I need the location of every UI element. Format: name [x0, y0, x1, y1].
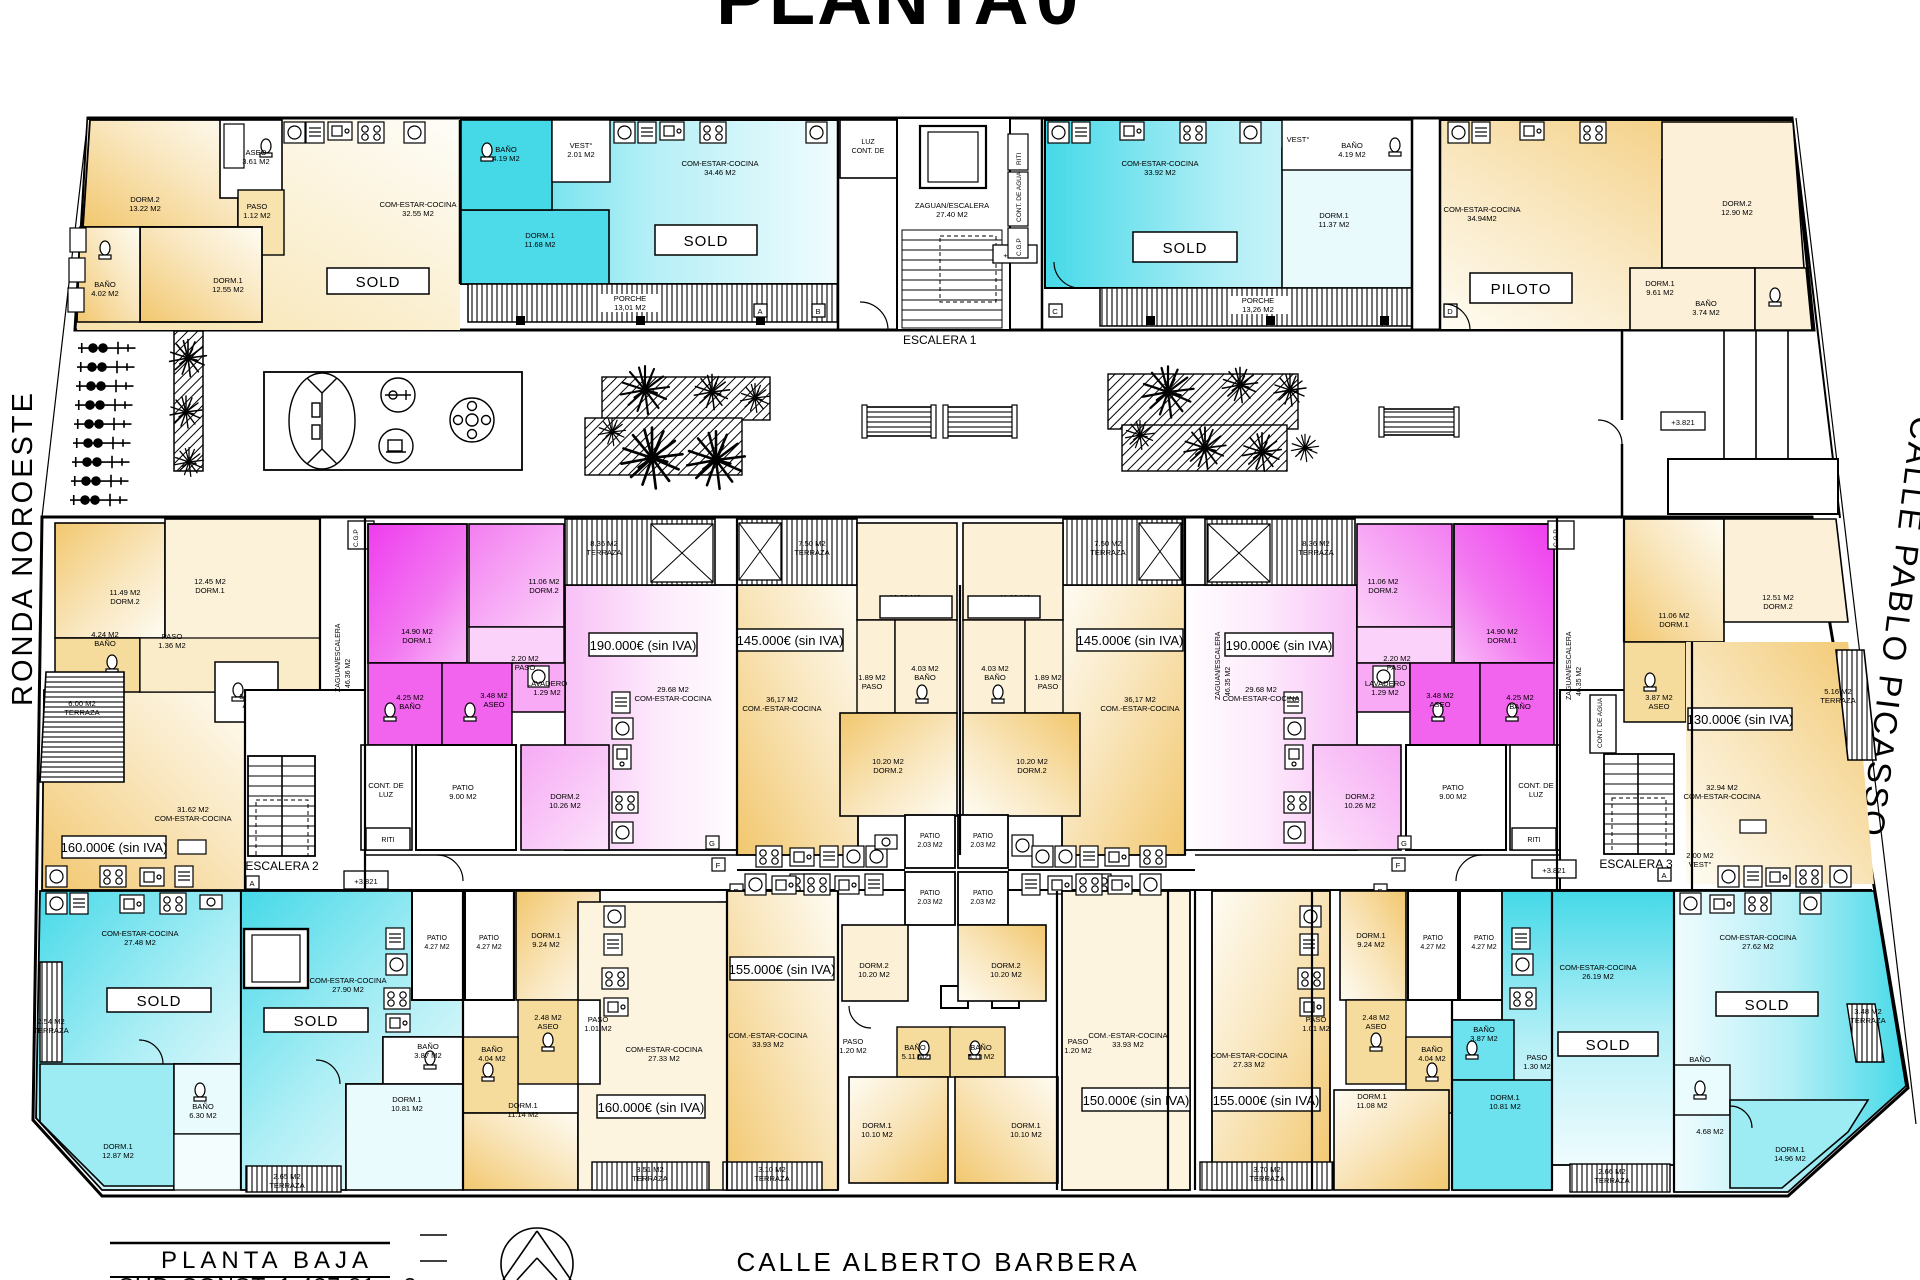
svg-text:12.51 M2: 12.51 M2 — [1762, 593, 1794, 602]
svg-text:BAÑO: BAÑO — [417, 1042, 439, 1051]
svg-text:11.68 M2: 11.68 M2 — [524, 240, 555, 249]
svg-text:4.25 M2: 4.25 M2 — [396, 693, 423, 702]
svg-text:BAÑO: BAÑO — [495, 145, 517, 154]
svg-text:DORM.2: DORM.2 — [1368, 586, 1398, 595]
svg-text:COM-ESTAR-COCINA: COM-ESTAR-COCINA — [1719, 933, 1797, 942]
svg-text:BAÑO: BAÑO — [1473, 1025, 1495, 1034]
svg-text:COM-ESTAR-COCINA: COM-ESTAR-COCINA — [681, 159, 759, 168]
svg-text:BAÑO: BAÑO — [1695, 299, 1717, 308]
svg-text:TERRAZA: TERRAZA — [33, 1026, 69, 1035]
svg-text:8.36 M2: 8.36 M2 — [1302, 539, 1329, 548]
svg-text:RITI: RITI — [1016, 153, 1023, 165]
svg-text:9.00 M2: 9.00 M2 — [1439, 792, 1466, 801]
svg-text:2.65 M2: 2.65 M2 — [273, 1172, 300, 1181]
svg-text:150.000€ (sin IVA): 150.000€ (sin IVA) — [1083, 1093, 1190, 1108]
svg-text:DORM.1: DORM.1 — [1319, 211, 1349, 220]
svg-text:46.35 M2: 46.35 M2 — [1225, 667, 1232, 696]
svg-text:ASEO: ASEO — [245, 148, 266, 157]
svg-text:10.10 M2: 10.10 M2 — [861, 1130, 893, 1139]
svg-text:SOLD: SOLD — [684, 233, 729, 250]
svg-text:0: 0 — [1036, 0, 1078, 41]
svg-text:BAÑO: BAÑO — [984, 673, 1006, 682]
svg-text:2.20 M2: 2.20 M2 — [511, 654, 538, 663]
svg-text:BAÑO: BAÑO — [914, 673, 936, 682]
svg-text:3.70 M2: 3.70 M2 — [1253, 1165, 1280, 1174]
svg-text:7.50 M2: 7.50 M2 — [1094, 539, 1121, 548]
svg-text:145.000€ (sin IVA): 145.000€ (sin IVA) — [737, 633, 844, 648]
svg-text:2.03 M2: 2.03 M2 — [917, 842, 942, 849]
svg-text:DORM.2: DORM.2 — [529, 586, 559, 595]
svg-text:2.03 M2: 2.03 M2 — [970, 842, 995, 849]
svg-text:COM.-ESTAR-COCINA: COM.-ESTAR-COCINA — [1088, 1031, 1168, 1040]
svg-text:4.03 M2: 4.03 M2 — [981, 664, 1008, 673]
svg-text:TERRAZA: TERRAZA — [1594, 1176, 1630, 1185]
svg-text:5.11 M2: 5.11 M2 — [902, 1052, 929, 1061]
svg-text:12.55 M2: 12.55 M2 — [212, 285, 244, 294]
svg-text:DORM.2: DORM.2 — [859, 961, 889, 970]
svg-text:14.90 M2: 14.90 M2 — [401, 627, 433, 636]
svg-text:+3.821: +3.821 — [1671, 418, 1694, 427]
svg-text:TERRAZA: TERRAZA — [1249, 1174, 1285, 1183]
svg-text:3.74 M2: 3.74 M2 — [1692, 308, 1719, 317]
svg-text:COM-ESTAR-COCINA: COM-ESTAR-COCINA — [1559, 963, 1637, 972]
svg-text:CALLE ALBERTO BARBERA: CALLE ALBERTO BARBERA — [736, 1247, 1139, 1277]
svg-text:C.G.P: C.G.P — [1016, 238, 1023, 256]
svg-text:3.48 M2: 3.48 M2 — [480, 691, 507, 700]
svg-text:DORM.1: DORM.1 — [392, 1095, 422, 1104]
svg-text:10.20 M2: 10.20 M2 — [872, 757, 904, 766]
svg-text:1.20 M2: 1.20 M2 — [1064, 1046, 1091, 1055]
svg-text:ASEO: ASEO — [483, 700, 504, 709]
svg-text:COM-ESTAR-COCINA: COM-ESTAR-COCINA — [101, 929, 179, 938]
svg-text:DORM.1: DORM.1 — [1356, 931, 1386, 940]
svg-text:32.94 M2: 32.94 M2 — [1706, 783, 1738, 792]
svg-text:DORM.1: DORM.1 — [1659, 620, 1689, 629]
svg-text:34.94M2: 34.94M2 — [1467, 214, 1497, 223]
svg-text:DORM.2: DORM.2 — [873, 766, 903, 775]
svg-text:PATIO: PATIO — [1474, 935, 1495, 942]
svg-text:PASO: PASO — [247, 202, 268, 211]
svg-text:COM-ESTAR-COCINA: COM-ESTAR-COCINA — [1683, 792, 1761, 801]
svg-text:12.45 M2: 12.45 M2 — [194, 577, 226, 586]
svg-text:2.01 M2: 2.01 M2 — [567, 150, 594, 159]
svg-text:12.87 M2: 12.87 M2 — [102, 1151, 134, 1160]
svg-text:36,17 M2: 36,17 M2 — [1124, 695, 1156, 704]
svg-text:DORM.1: DORM.1 — [103, 1142, 133, 1151]
svg-text:SOLD: SOLD — [1163, 240, 1208, 257]
svg-text:11.06 M2: 11.06 M2 — [1367, 577, 1398, 586]
svg-text:TERRAZA: TERRAZA — [1298, 548, 1334, 557]
svg-text:10.26 M2: 10.26 M2 — [1344, 801, 1376, 810]
svg-text:PATIO: PATIO — [479, 935, 500, 942]
svg-text:3.48 M2: 3.48 M2 — [1854, 1007, 1881, 1016]
svg-text:145.000€ (sin IVA): 145.000€ (sin IVA) — [1077, 633, 1184, 648]
svg-text:C: C — [1052, 307, 1058, 316]
svg-text:14.90 M2: 14.90 M2 — [1486, 627, 1518, 636]
svg-text:PASO: PASO — [1038, 682, 1059, 691]
svg-text:10.81 M2: 10.81 M2 — [391, 1104, 423, 1113]
svg-text:RITI: RITI — [381, 837, 394, 844]
svg-text:4.27 M2: 4.27 M2 — [1471, 944, 1496, 951]
svg-text:LUZ: LUZ — [1529, 790, 1544, 799]
svg-text:SOLD: SOLD — [1745, 997, 1790, 1014]
svg-text:26.19 M2: 26.19 M2 — [1582, 972, 1614, 981]
svg-text:11.06 M2: 11.06 M2 — [528, 577, 559, 586]
svg-text:COM-ESTAR-COCINA: COM-ESTAR-COCINA — [154, 814, 232, 823]
svg-text:13,01 M2: 13,01 M2 — [614, 303, 646, 312]
svg-text:CONT. DE: CONT. DE — [368, 781, 403, 790]
svg-text:33.93 M2: 33.93 M2 — [752, 1040, 784, 1049]
svg-text:160.000€ (sin IVA): 160.000€ (sin IVA) — [598, 1100, 705, 1115]
svg-text:190.000€ (sin IVA): 190.000€ (sin IVA) — [590, 638, 697, 653]
svg-text:PATIO: PATIO — [1423, 935, 1444, 942]
svg-text:29.68 M2: 29.68 M2 — [1245, 685, 1277, 694]
svg-text:PASO: PASO — [843, 1037, 864, 1046]
svg-text:DORM.1: DORM.1 — [525, 231, 555, 240]
svg-text:F: F — [1396, 861, 1401, 870]
svg-text:DORM.2: DORM.2 — [550, 792, 580, 801]
svg-text:BAÑO: BAÑO — [94, 639, 116, 648]
svg-text:COM-ESTAR-COCINA: COM-ESTAR-COCINA — [379, 200, 457, 209]
svg-text:2.20 M2: 2.20 M2 — [1383, 654, 1410, 663]
svg-text:155.000€ (sin IVA): 155.000€ (sin IVA) — [729, 962, 836, 977]
svg-text:ZAGUAN/ESCALERA: ZAGUAN/ESCALERA — [915, 201, 990, 210]
svg-text:PASO: PASO — [1306, 1015, 1327, 1024]
svg-text:COM-ESTAR-COCINA: COM-ESTAR-COCINA — [1210, 1051, 1288, 1060]
svg-text:DORM.1: DORM.1 — [1357, 1092, 1387, 1101]
svg-text:PATIO: PATIO — [973, 890, 994, 897]
svg-text:ZAGUAN/ESCALERA: ZAGUAN/ESCALERA — [1215, 631, 1222, 700]
svg-text:ASEO: ASEO — [1365, 1022, 1386, 1031]
svg-text:10.81 M2: 10.81 M2 — [1489, 1102, 1521, 1111]
svg-text:11.37 M2: 11.37 M2 — [1318, 220, 1349, 229]
svg-text:COM-ESTAR-COCINA: COM-ESTAR-COCINA — [634, 694, 712, 703]
svg-text:COM-ESTAR-COCINA: COM-ESTAR-COCINA — [625, 1045, 703, 1054]
svg-text:9.24 M2: 9.24 M2 — [532, 940, 559, 949]
svg-text:29.68 M2: 29.68 M2 — [657, 685, 689, 694]
svg-text:11.14 M2: 11.14 M2 — [507, 1110, 538, 1119]
svg-text:4.24 M2: 4.24 M2 — [91, 630, 118, 639]
svg-text:PASO: PASO — [162, 632, 183, 641]
svg-text:2.03 M2: 2.03 M2 — [970, 899, 995, 906]
svg-text:33.92 M2: 33.92 M2 — [1144, 168, 1176, 177]
svg-text:ASEO: ASEO — [1429, 700, 1450, 709]
svg-text:DORM.1: DORM.1 — [1775, 1145, 1805, 1154]
svg-text:DORM.1: DORM.1 — [1487, 636, 1517, 645]
svg-text:TERRAZA: TERRAZA — [64, 708, 100, 717]
svg-text:DORM.2: DORM.2 — [130, 195, 160, 204]
svg-text:3.87 M2: 3.87 M2 — [1645, 693, 1672, 702]
svg-text:27.62 M2: 27.62 M2 — [1742, 942, 1774, 951]
svg-text:4.03 M2: 4.03 M2 — [911, 664, 938, 673]
svg-text:SUP. CONST: 1.437,81 m2: SUP. CONST: 1.437,81 m2 — [119, 1273, 418, 1280]
svg-text:BAÑO: BAÑO — [1689, 1055, 1711, 1064]
svg-text:DORM.1: DORM.1 — [195, 586, 225, 595]
svg-text:PASO: PASO — [1387, 663, 1408, 672]
svg-text:BAÑO: BAÑO — [904, 1043, 926, 1052]
svg-text:DORM.1: DORM.1 — [508, 1101, 538, 1110]
svg-text:4.04 M2: 4.04 M2 — [1418, 1054, 1445, 1063]
svg-text:PORCHE: PORCHE — [1242, 296, 1275, 305]
svg-text:10.20 M2: 10.20 M2 — [1016, 757, 1048, 766]
svg-text:COM.-ESTAR-COCINA: COM.-ESTAR-COCINA — [728, 1031, 808, 1040]
svg-text:SOLD: SOLD — [137, 993, 182, 1010]
svg-text:TERRAZA: TERRAZA — [1090, 548, 1126, 557]
svg-text:12.90 M2: 12.90 M2 — [1721, 208, 1753, 217]
svg-text:COM.-ESTAR-COCINA: COM.-ESTAR-COCINA — [742, 704, 822, 713]
svg-text:6.00 M2: 6.00 M2 — [68, 699, 95, 708]
svg-text:COM-ESTAR-COCINA: COM-ESTAR-COCINA — [1121, 159, 1199, 168]
svg-text:3.87 M2: 3.87 M2 — [414, 1051, 441, 1060]
svg-text:27.48 M2: 27.48 M2 — [124, 938, 156, 947]
svg-text:SOLD: SOLD — [1586, 1037, 1631, 1054]
svg-text:46.36 M2: 46.36 M2 — [345, 659, 352, 688]
svg-text:4.68 M2: 4.68 M2 — [1696, 1127, 1723, 1136]
svg-text:ASEO: ASEO — [537, 1022, 558, 1031]
svg-text:13.22 M2: 13.22 M2 — [129, 204, 161, 213]
svg-text:PATIO: PATIO — [920, 890, 941, 897]
svg-text:PATIO: PATIO — [427, 935, 448, 942]
svg-text:DORM.2: DORM.2 — [1722, 199, 1752, 208]
svg-text:TERRAZA: TERRAZA — [1820, 696, 1856, 705]
svg-text:TERRAZA: TERRAZA — [586, 548, 622, 557]
svg-text:155.000€ (sin IVA): 155.000€ (sin IVA) — [1213, 1093, 1320, 1108]
svg-text:4.19 M2: 4.19 M2 — [492, 154, 519, 163]
svg-text:DORM.2: DORM.2 — [1345, 792, 1375, 801]
svg-text:7.50 M2: 7.50 M2 — [798, 539, 825, 548]
svg-text:TERRAZA: TERRAZA — [754, 1174, 790, 1183]
svg-text:DORM.1: DORM.1 — [1011, 1121, 1041, 1130]
svg-text:RITI: RITI — [1527, 837, 1540, 844]
svg-text:DORM.1: DORM.1 — [1490, 1093, 1520, 1102]
svg-text:2.03 M2: 2.03 M2 — [917, 899, 942, 906]
svg-text:DORM.2: DORM.2 — [1017, 766, 1047, 775]
svg-text:ZAGUAN/ESCALERA: ZAGUAN/ESCALERA — [1566, 631, 1573, 700]
svg-text:ESCALERA 1: ESCALERA 1 — [903, 333, 977, 347]
svg-text:130.000€ (sin IVA): 130.000€ (sin IVA) — [1687, 712, 1794, 727]
svg-text:DORM.2: DORM.2 — [110, 597, 140, 606]
svg-text:LUZ: LUZ — [861, 139, 875, 146]
svg-text:COM-ESTAR-COCINA: COM-ESTAR-COCINA — [1443, 205, 1521, 214]
svg-text:DORM.2: DORM.2 — [1763, 602, 1793, 611]
svg-text:1.89 M2: 1.89 M2 — [858, 673, 885, 682]
svg-text:TERRAZA: TERRAZA — [632, 1174, 668, 1183]
svg-text:PORCHE: PORCHE — [614, 294, 647, 303]
svg-text:COM.-ESTAR-COCINA: COM.-ESTAR-COCINA — [1100, 704, 1180, 713]
svg-text:G: G — [709, 839, 715, 848]
svg-text:4.27 M2: 4.27 M2 — [1420, 944, 1445, 951]
svg-text:BAÑO: BAÑO — [94, 280, 116, 289]
svg-text:BAÑO: BAÑO — [970, 1043, 992, 1052]
svg-text:COM-ESTAR-COCINA: COM-ESTAR-COCINA — [1222, 694, 1300, 703]
svg-text:3.48 M2: 3.48 M2 — [1426, 691, 1453, 700]
svg-text:PILOTO: PILOTO — [1491, 281, 1552, 298]
svg-text:5.11 M2: 5.11 M2 — [968, 1052, 995, 1061]
svg-text:VEST°: VEST° — [570, 141, 593, 150]
svg-text:1.29 M2: 1.29 M2 — [533, 688, 560, 697]
svg-text:46.35 M2: 46.35 M2 — [1576, 667, 1583, 696]
svg-text:C.G.P: C.G.P — [353, 529, 360, 547]
svg-text:PATIO: PATIO — [1442, 783, 1464, 792]
svg-text:TERRAZA: TERRAZA — [269, 1181, 305, 1190]
svg-text:ESCALERA 2: ESCALERA 2 — [245, 859, 319, 873]
svg-text:ASEO: ASEO — [1648, 702, 1669, 711]
svg-text:PASO: PASO — [862, 682, 883, 691]
svg-text:9.24 M2: 9.24 M2 — [1357, 940, 1384, 949]
svg-text:11.08 M2: 11.08 M2 — [1356, 1101, 1387, 1110]
svg-text:D: D — [1447, 307, 1453, 316]
svg-text:2.48 M2: 2.48 M2 — [534, 1013, 561, 1022]
svg-text:3.87 M2: 3.87 M2 — [1470, 1034, 1497, 1043]
svg-text:4.04 M2: 4.04 M2 — [478, 1054, 505, 1063]
svg-text:LUZ: LUZ — [379, 790, 394, 799]
svg-text:3.51 M2: 3.51 M2 — [636, 1165, 663, 1174]
svg-text:4.27 M2: 4.27 M2 — [424, 944, 449, 951]
svg-text:G: G — [1401, 839, 1407, 848]
svg-text:10.20 M2: 10.20 M2 — [990, 970, 1022, 979]
svg-text:BAÑO: BAÑO — [1509, 702, 1531, 711]
svg-text:DORM.1: DORM.1 — [213, 276, 243, 285]
svg-text:32.55 M2: 32.55 M2 — [402, 209, 434, 218]
svg-text:PASO: PASO — [515, 663, 536, 672]
svg-text:DORM.1: DORM.1 — [531, 931, 561, 940]
svg-text:PASO: PASO — [588, 1015, 609, 1024]
svg-text:2.54 M2: 2.54 M2 — [37, 1017, 64, 1026]
svg-text:33.93 M2: 33.93 M2 — [1112, 1040, 1144, 1049]
svg-text:6.30 M2: 6.30 M2 — [189, 1111, 216, 1120]
svg-text:1.30 M2: 1.30 M2 — [1523, 1062, 1550, 1071]
svg-text:BAÑO: BAÑO — [192, 1102, 214, 1111]
svg-text:31.62 M2: 31.62 M2 — [177, 805, 209, 814]
svg-text:4.02 M2: 4.02 M2 — [91, 289, 118, 298]
svg-text:RONDA NOROESTE: RONDA NOROESTE — [7, 390, 39, 706]
svg-text:BAÑO: BAÑO — [1341, 141, 1363, 150]
svg-text:3.10 M2: 3.10 M2 — [758, 1165, 785, 1174]
svg-text:CONT. DE AGUA: CONT. DE AGUA — [1597, 697, 1604, 748]
svg-text:VEST°: VEST° — [1287, 135, 1310, 144]
svg-text:4.25 M2: 4.25 M2 — [1506, 693, 1533, 702]
svg-text:BAÑO: BAÑO — [1421, 1045, 1443, 1054]
svg-text:BAÑO: BAÑO — [399, 702, 421, 711]
svg-text:1.29 M2: 1.29 M2 — [1371, 688, 1398, 697]
svg-text:10.10 M2: 10.10 M2 — [1010, 1130, 1042, 1139]
svg-text:PASO: PASO — [1527, 1053, 1548, 1062]
svg-text:B: B — [815, 307, 820, 316]
svg-text:27.33 M2: 27.33 M2 — [648, 1054, 680, 1063]
svg-text:10.20 M2: 10.20 M2 — [858, 970, 890, 979]
svg-text:PASO: PASO — [1068, 1037, 1089, 1046]
svg-text:DORM.1: DORM.1 — [402, 636, 432, 645]
svg-text:2.48 M2: 2.48 M2 — [1362, 1013, 1389, 1022]
svg-text:4.27 M2: 4.27 M2 — [476, 944, 501, 951]
svg-text:LAVADERO: LAVADERO — [527, 679, 567, 688]
svg-text:2.00 M2: 2.00 M2 — [1686, 851, 1713, 860]
svg-text:160.000€ (sin IVA): 160.000€ (sin IVA) — [61, 840, 168, 855]
svg-text:CONT. DE AGUA: CONT. DE AGUA — [1016, 171, 1023, 222]
svg-text:13,26 M2: 13,26 M2 — [1242, 305, 1274, 314]
svg-text:5.16 M2: 5.16 M2 — [1824, 687, 1851, 696]
svg-text:14.96 M2: 14.96 M2 — [1774, 1154, 1806, 1163]
svg-text:190.000€ (sin IVA): 190.000€ (sin IVA) — [1226, 638, 1333, 653]
svg-text:36,17 M2: 36,17 M2 — [766, 695, 798, 704]
svg-text:SOLD: SOLD — [294, 1013, 339, 1030]
svg-text:TERRAZA: TERRAZA — [794, 548, 830, 557]
svg-text:TERRAZA: TERRAZA — [1850, 1016, 1886, 1025]
svg-text:BAÑO: BAÑO — [481, 1045, 503, 1054]
svg-text:PATIO: PATIO — [452, 783, 474, 792]
svg-text:1.36 M2: 1.36 M2 — [158, 641, 185, 650]
svg-text:PATIO: PATIO — [920, 833, 941, 840]
svg-text:1.89 M2: 1.89 M2 — [1034, 673, 1061, 682]
svg-text:1.01 M2: 1.01 M2 — [1302, 1024, 1329, 1033]
svg-text:PATIO: PATIO — [973, 833, 994, 840]
svg-text:3.61 M2: 3.61 M2 — [242, 157, 269, 166]
svg-text:11.49 M2: 11.49 M2 — [109, 588, 140, 597]
svg-text:ZAGUAN/ESCALERA: ZAGUAN/ESCALERA — [335, 623, 342, 692]
svg-text:1.12 M2: 1.12 M2 — [243, 211, 270, 220]
svg-text:8.36 M2: 8.36 M2 — [590, 539, 617, 548]
svg-text:2.66 M2: 2.66 M2 — [1598, 1167, 1625, 1176]
svg-text:DORM.2: DORM.2 — [991, 961, 1021, 970]
svg-text:9.00 M2: 9.00 M2 — [449, 792, 476, 801]
svg-text:CONT. DE: CONT. DE — [852, 148, 885, 155]
svg-text:+3.821: +3.821 — [1542, 866, 1565, 875]
svg-text:DORM.1: DORM.1 — [1645, 279, 1675, 288]
svg-text:27.40 M2: 27.40 M2 — [936, 210, 968, 219]
svg-text:4.19 M2: 4.19 M2 — [1338, 150, 1365, 159]
svg-text:SOLD: SOLD — [356, 274, 401, 291]
svg-text:1.20 M2: 1.20 M2 — [839, 1046, 866, 1055]
svg-text:10.26 M2: 10.26 M2 — [549, 801, 581, 810]
svg-text:DORM.1: DORM.1 — [862, 1121, 892, 1130]
svg-text:27.33 M2: 27.33 M2 — [1233, 1060, 1265, 1069]
svg-text:1.01 M2: 1.01 M2 — [584, 1024, 611, 1033]
svg-text:PLANTA BAJA: PLANTA BAJA — [161, 1247, 373, 1274]
svg-text:27.90 M2: 27.90 M2 — [332, 985, 364, 994]
svg-text:34.46 M2: 34.46 M2 — [704, 168, 736, 177]
svg-text:11.06 M2: 11.06 M2 — [1658, 611, 1689, 620]
svg-text:F: F — [716, 861, 721, 870]
svg-text:COM-ESTAR-COCINA: COM-ESTAR-COCINA — [309, 976, 387, 985]
svg-text:CONT. DE: CONT. DE — [1518, 781, 1553, 790]
svg-text:9.61 M2: 9.61 M2 — [1646, 288, 1673, 297]
svg-text:LAVADERO: LAVADERO — [1365, 679, 1405, 688]
svg-text:PLANTA: PLANTA — [716, 0, 1031, 41]
